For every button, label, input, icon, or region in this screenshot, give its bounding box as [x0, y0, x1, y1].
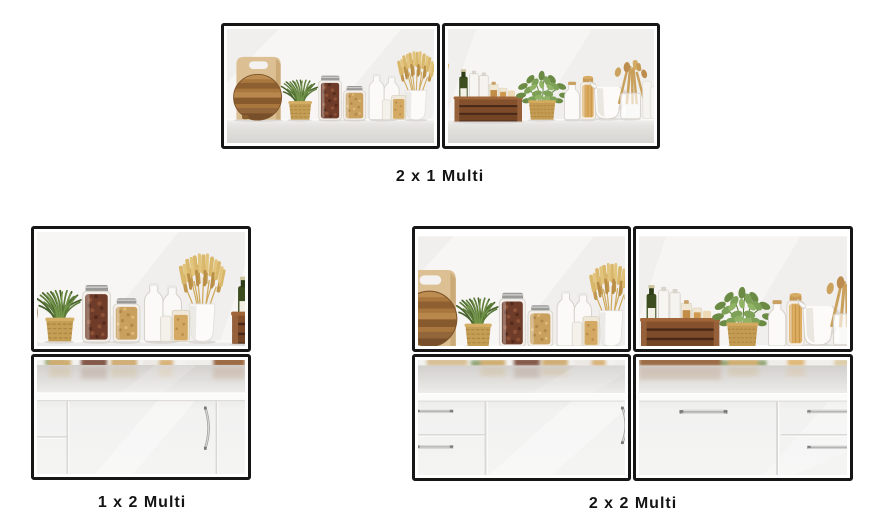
svg-text:2 x 2 Multi: 2 x 2 Multi	[589, 495, 677, 512]
svg-text:1 x 2 Multi: 1 x 2 Multi	[98, 494, 186, 511]
svg-text:2 x 1 Multi: 2 x 1 Multi	[396, 168, 484, 185]
